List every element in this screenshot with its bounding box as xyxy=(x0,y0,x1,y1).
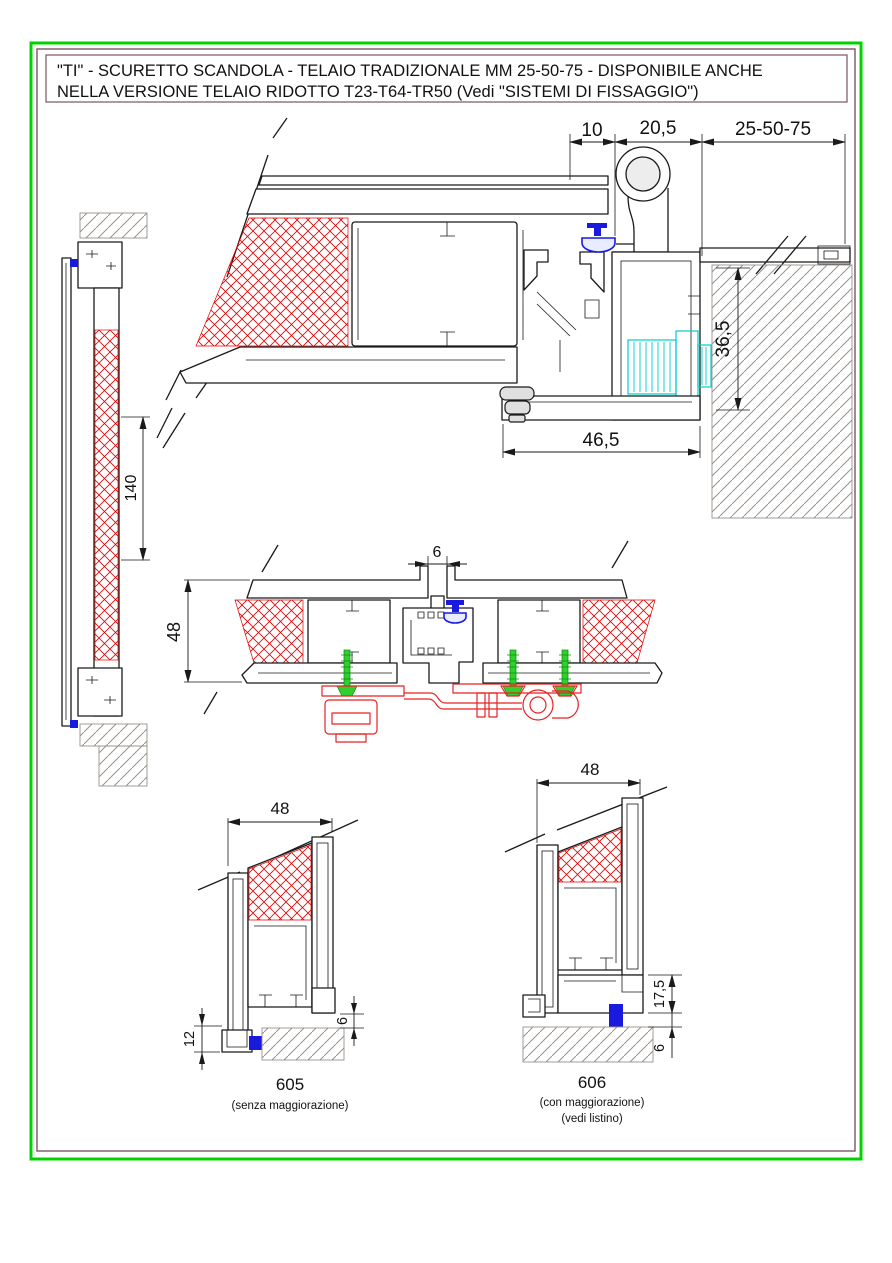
wall-hatch-right xyxy=(712,265,852,518)
dim-20-5-label: 20,5 xyxy=(640,118,677,139)
bottom-shoe xyxy=(222,1030,252,1052)
bottom-foot xyxy=(312,988,335,1013)
frame-chamber xyxy=(612,252,700,420)
dim-48-label: 48 xyxy=(271,799,290,818)
dim-48-label: 48 xyxy=(581,760,600,779)
dim-48-depth: 48 xyxy=(164,580,250,682)
bottom-shoe xyxy=(523,995,545,1017)
wall-hatch-bottom-b xyxy=(99,746,147,786)
inner-rail xyxy=(312,837,333,1013)
panel-hatch-right xyxy=(583,600,655,663)
dim-6-label: 6 xyxy=(652,1044,668,1052)
sill-profile xyxy=(78,668,122,716)
gasket-bottom xyxy=(70,720,78,728)
right-skin xyxy=(447,566,627,598)
dim-140-label: 140 xyxy=(123,475,140,502)
detail-605-label: 605 xyxy=(276,1075,304,1094)
outer-skin-rail xyxy=(537,845,558,1013)
dim-6-label: 6 xyxy=(335,1017,351,1025)
panel-hatch xyxy=(196,218,348,346)
dim-17-5-label: 17,5 xyxy=(652,980,668,1008)
hinge xyxy=(612,147,670,252)
gasket-t xyxy=(446,600,464,605)
detail-606-label: 606 xyxy=(578,1073,606,1092)
dim-25-50-75-label: 25-50-75 xyxy=(735,119,811,140)
astragal-profile xyxy=(403,596,473,683)
detail-606-caption-2: (vedi listino) xyxy=(561,1113,623,1125)
inner-rail xyxy=(622,798,643,975)
skin-outer-face xyxy=(259,176,608,185)
dim-17-5: 17,5 xyxy=(648,975,682,1013)
center-meeting-section: 6 48 xyxy=(164,541,662,742)
technical-drawing: "TI" - SCURETTO SCANDOLA - TELAIO TRADIZ… xyxy=(0,0,892,1263)
wall-hatch-bottom-a xyxy=(80,724,147,746)
sash-chamber xyxy=(352,222,517,346)
floor-hatch xyxy=(262,1028,344,1060)
title-line-1: "TI" - SCURETTO SCANDOLA - TELAIO TRADIZ… xyxy=(57,62,763,80)
left-skin xyxy=(247,566,428,598)
title-block: "TI" - SCURETTO SCANDOLA - TELAIO TRADIZ… xyxy=(57,62,763,101)
dim-48-label: 48 xyxy=(164,622,184,642)
dim-6-label: 6 xyxy=(433,544,442,561)
dim-chain-top: 10 20,5 25-50-75 xyxy=(570,118,845,256)
carriage-hardware xyxy=(322,684,581,742)
interlock-zone xyxy=(523,223,615,372)
skin-rail xyxy=(62,258,71,726)
gasket xyxy=(249,1036,262,1050)
outer-skin-rail xyxy=(228,873,248,1048)
dim-140: 140 xyxy=(121,417,150,560)
drawing-page: "TI" - SCURETTO SCANDOLA - TELAIO TRADIZ… xyxy=(0,0,892,1263)
panel-hatch-left xyxy=(235,600,303,663)
detail-605-caption: (senza maggiorazione) xyxy=(232,1100,349,1112)
dim-46-5-label: 46,5 xyxy=(583,430,620,451)
dim-12: 12 xyxy=(182,1008,222,1070)
dim-6-gap: 6 xyxy=(408,544,467,574)
detail-605: 48 12 6 605 (senza maggiorazione) xyxy=(182,799,364,1112)
panel-hatch xyxy=(95,330,118,660)
detail-606-caption-1: (con maggiorazione) xyxy=(540,1097,645,1109)
panel-hatch xyxy=(559,829,621,882)
dim-12-label: 12 xyxy=(182,1031,198,1047)
gasket-cup xyxy=(444,613,466,623)
floor-hatch xyxy=(523,1027,653,1062)
gasket-cup xyxy=(582,238,615,252)
frame-bottom-rail xyxy=(502,396,700,420)
dim-46-5: 46,5 xyxy=(503,424,700,458)
hinge-pin xyxy=(626,157,660,191)
head-profile xyxy=(78,242,122,288)
title-line-2: NELLA VERSIONE TELAIO RIDOTTO T23-T64-TR… xyxy=(57,83,699,101)
gasket-t xyxy=(587,223,607,228)
gasket-top xyxy=(70,259,78,267)
frame-top-rail xyxy=(700,248,850,262)
wall-hatch-top xyxy=(80,213,147,238)
break-lines xyxy=(157,370,181,438)
dim-36-5-label: 36,5 xyxy=(713,321,734,358)
dim-10-label: 10 xyxy=(581,120,602,141)
side-vertical-section: 140 xyxy=(62,213,181,786)
main-horizontal-section: 10 20,5 25-50-75 36,5 46,5 xyxy=(163,118,852,518)
sash-bottom-rail xyxy=(180,347,517,383)
skin-band xyxy=(247,189,608,214)
detail-606: 48 17,5 6 606 (con maggiorazione) (vedi … xyxy=(505,760,682,1125)
brush-seal xyxy=(609,1004,623,1027)
